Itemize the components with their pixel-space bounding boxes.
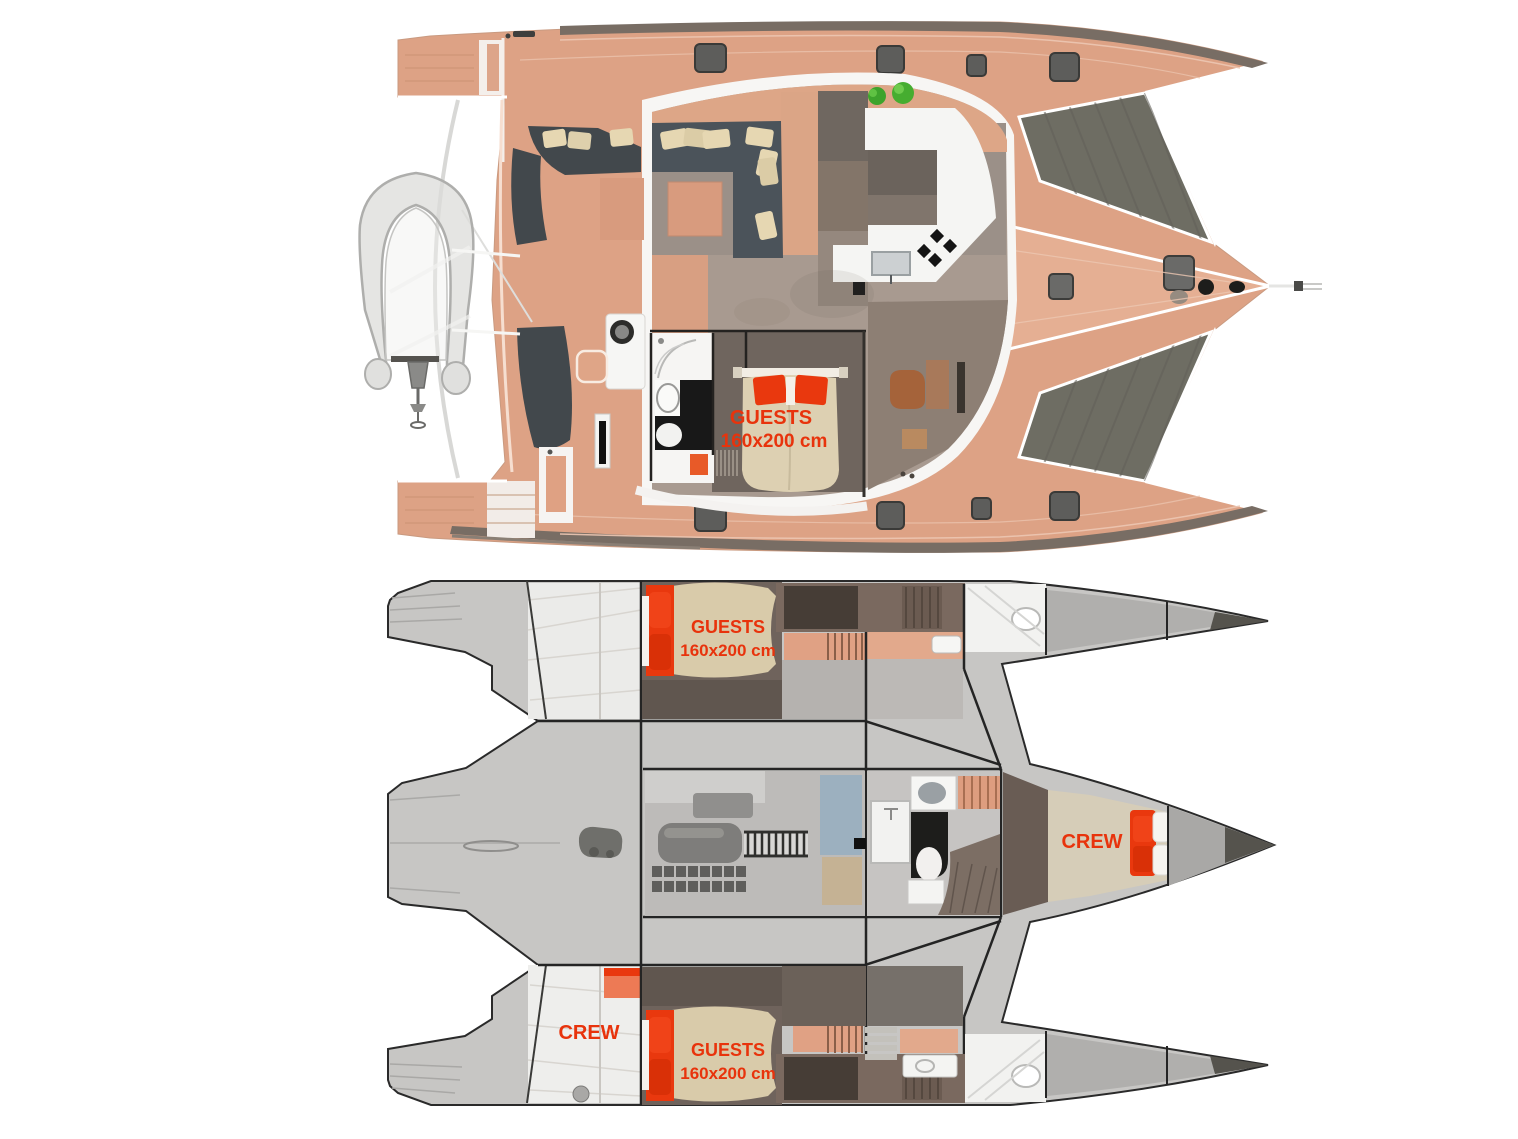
svg-text:160x200 cm: 160x200 cm bbox=[680, 641, 775, 660]
svg-text:160x200 cm: 160x200 cm bbox=[721, 431, 828, 452]
svg-text:CREW: CREW bbox=[1061, 831, 1122, 853]
svg-text:GUESTS: GUESTS bbox=[730, 407, 812, 429]
svg-text:160x200 cm: 160x200 cm bbox=[680, 1064, 775, 1083]
svg-text:GUESTS: GUESTS bbox=[691, 617, 765, 637]
svg-text:GUESTS: GUESTS bbox=[691, 1040, 765, 1060]
svg-text:CREW: CREW bbox=[558, 1022, 619, 1044]
